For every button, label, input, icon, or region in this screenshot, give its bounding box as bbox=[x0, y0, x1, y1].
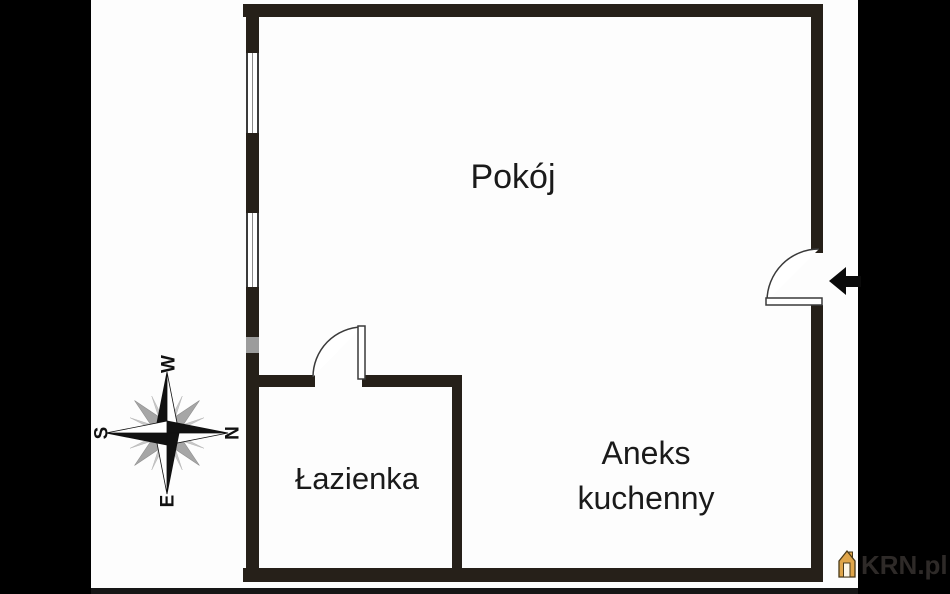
compass-rose: W N E S bbox=[87, 348, 247, 518]
compass-label-right: N bbox=[223, 426, 244, 440]
left-black-band bbox=[0, 0, 91, 594]
compass-label-left: S bbox=[92, 427, 113, 440]
entrance-arrow-icon bbox=[829, 267, 861, 295]
bathroom-wall-vertical bbox=[452, 375, 462, 568]
room-label: Pokój bbox=[428, 158, 598, 197]
left-wall-segment bbox=[246, 4, 259, 53]
bottom-wall bbox=[243, 568, 823, 582]
kitchenette-label-line2: kuchenny bbox=[546, 476, 746, 521]
compass-label-top: W bbox=[159, 355, 180, 373]
right-black-band bbox=[858, 0, 950, 594]
compass-label-bottom: E bbox=[158, 495, 179, 508]
left-wall-segment bbox=[246, 287, 259, 337]
bottom-edge-strip bbox=[91, 588, 858, 594]
bathroom-wall-right bbox=[362, 375, 462, 387]
kitchenette-label: Aneks kuchenny bbox=[546, 431, 746, 521]
bathroom-door-arc bbox=[313, 327, 362, 377]
window-glass-line bbox=[252, 53, 253, 133]
bathroom-wall-left bbox=[259, 375, 315, 387]
compass-main-star bbox=[106, 372, 228, 494]
right-wall-upper bbox=[811, 4, 823, 253]
bathroom-door-leaf bbox=[358, 326, 365, 379]
bathroom-label: Łazienka bbox=[268, 461, 446, 497]
wall-gray-segment bbox=[246, 337, 259, 353]
watermark-text: KRN.pl bbox=[861, 550, 948, 581]
window-glass-line bbox=[252, 213, 253, 287]
top-wall bbox=[243, 4, 823, 17]
house-icon bbox=[836, 548, 858, 580]
floorplan-image: Pokój Łazienka Aneks kuchenny bbox=[0, 0, 950, 594]
entrance-door-arc bbox=[767, 249, 819, 301]
right-wall-lower bbox=[811, 305, 823, 582]
kitchenette-label-line1: Aneks bbox=[546, 431, 746, 476]
left-wall-segment bbox=[246, 353, 259, 582]
left-wall-segment bbox=[246, 133, 259, 213]
window bbox=[246, 213, 259, 287]
window bbox=[246, 53, 259, 133]
krn-watermark: KRN.pl bbox=[836, 548, 950, 582]
entrance-door-leaf bbox=[766, 298, 822, 305]
